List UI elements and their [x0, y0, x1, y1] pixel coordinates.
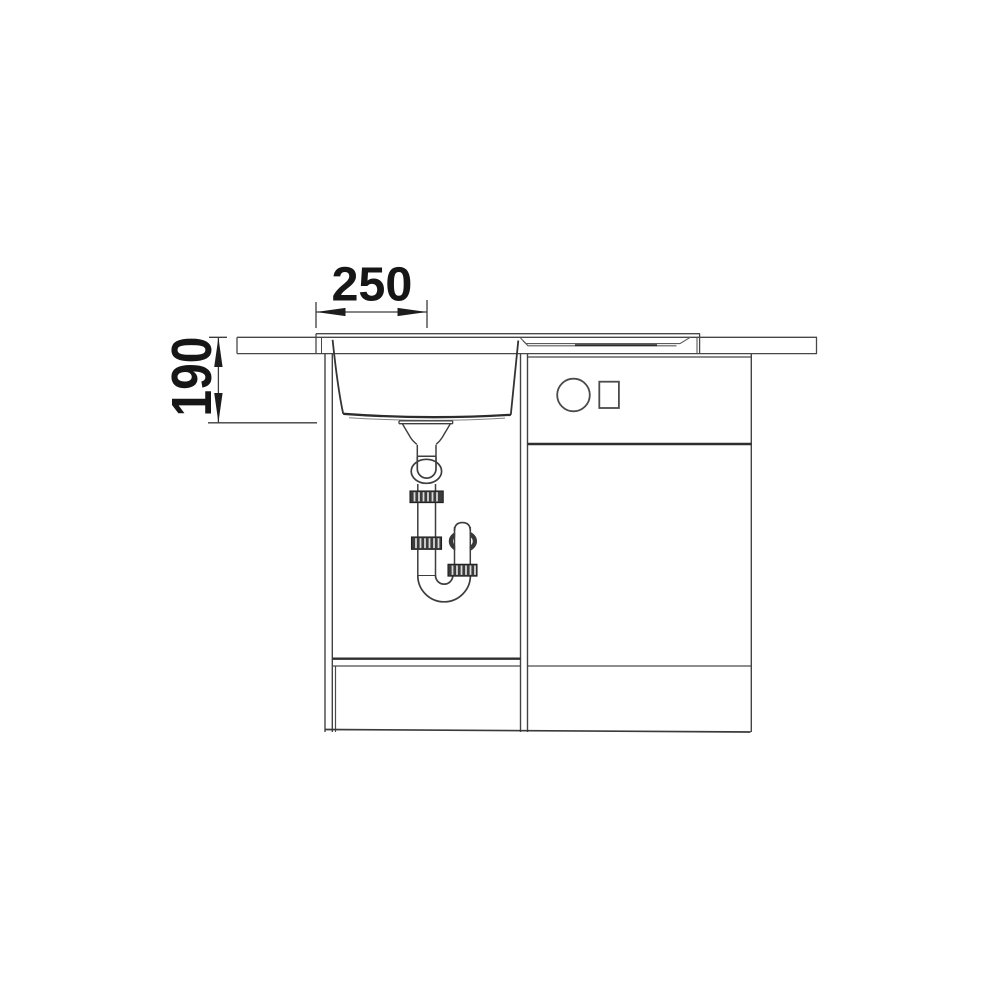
- svg-text:190: 190: [160, 337, 224, 417]
- svg-text:250: 250: [331, 258, 412, 312]
